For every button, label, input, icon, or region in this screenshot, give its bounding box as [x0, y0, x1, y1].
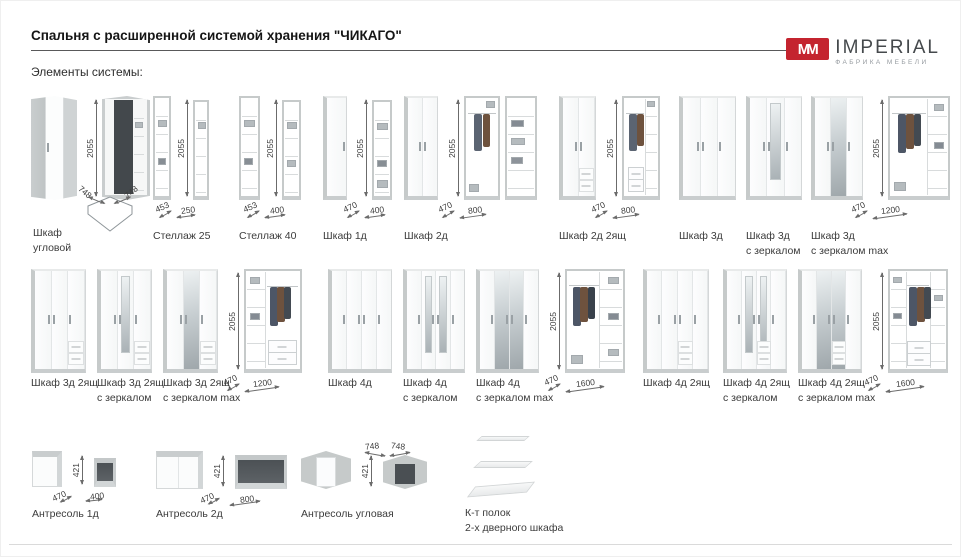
- page-bottom-divider: [9, 544, 952, 545]
- mirror-door: [184, 271, 201, 369]
- open-view: [383, 455, 427, 489]
- shelving-view-deep: [153, 96, 171, 200]
- open-view: [565, 269, 625, 373]
- width-dim: 800: [467, 204, 482, 216]
- height-dim: 421: [71, 453, 83, 487]
- product-label: Шкафугловой: [33, 226, 71, 255]
- closed-view: [31, 96, 77, 200]
- brand-logo: MM IMPERIAL ФАБРИКА МЕБЕЛИ: [786, 38, 940, 66]
- product-label: Шкаф 3дс зеркалом max: [811, 229, 888, 258]
- shelving-view-deep: [239, 96, 260, 200]
- depth-dim: 470: [51, 489, 68, 504]
- mirror-door: [436, 271, 451, 369]
- product-label: Шкаф 3д 2ящ: [31, 376, 98, 391]
- drawers: [832, 341, 847, 365]
- product-shkaf-4d-2yasch-zerkalo-max: 2055 470 1600: [798, 269, 948, 373]
- product-shkaf-3d-2yasch-zerkalo: Шкаф 3д 2ящс зеркалом: [97, 269, 152, 373]
- open-view: [94, 458, 116, 487]
- mirror-door: [495, 271, 510, 369]
- width-dim-right: 748: [391, 440, 406, 451]
- product-label: Стеллаж 25: [153, 229, 210, 244]
- drawers: [757, 341, 772, 365]
- shelving-view-front: [282, 100, 301, 200]
- section-subtitle: Элементы системы:: [31, 65, 143, 79]
- footprint: 748 748: [86, 196, 146, 236]
- product-antresol-2d: 421 470 800 Антресоль 2д: [156, 451, 287, 489]
- product-label: Шкаф 4дс зеркалом: [403, 376, 458, 405]
- product-antresol-1d: 421 470 400 Антресоль 1д: [32, 451, 116, 487]
- header-divider: [31, 50, 797, 51]
- drawers: [134, 341, 150, 365]
- width-dim: 400: [369, 204, 384, 216]
- product-shkaf-3d-2yasch-zerkalo-max: 2055 470 1200 Шкаф 3д 2ящс зеркалом m: [163, 269, 302, 373]
- closed-view: [163, 269, 218, 373]
- product-stellazh-40: 2055 453 400 Стеллаж 40: [239, 96, 301, 200]
- product-label: К-т полок2-х дверного шкафа: [465, 506, 563, 535]
- product-shkaf-4d-2yasch-zerkalo: Шкаф 4д 2ящс зеркалом: [723, 269, 787, 373]
- product-shkaf-3d-zerkalo: Шкаф 3дс зеркалом: [746, 96, 802, 200]
- closed-view: [476, 269, 539, 373]
- open-view: [888, 96, 950, 200]
- product-label: Шкаф 4д 2ящ: [643, 376, 710, 391]
- brand-tagline: ФАБРИКА МЕБЕЛИ: [835, 59, 940, 66]
- product-shkaf-4d-zerkalo: Шкаф 4дс зеркалом: [403, 269, 465, 373]
- product-shkaf-3d-2yasch: Шкаф 3д 2ящ: [31, 269, 86, 373]
- closed-view: [31, 269, 86, 373]
- height-dim: 2055: [548, 269, 560, 373]
- height-dim: 2055: [176, 96, 188, 200]
- width-dim: 400: [89, 490, 104, 502]
- drawers: [579, 168, 594, 192]
- open-view: [372, 100, 392, 200]
- height-dim: 2055: [871, 269, 883, 373]
- product-label: Шкаф 4дс зеркалом max: [476, 376, 553, 405]
- product-antresol-uglovaya: 421 748 748 Антресоль угловая: [301, 451, 427, 489]
- closed-view: [746, 96, 802, 200]
- height-dim: 421: [212, 453, 224, 489]
- product-label: Шкаф 1д: [323, 229, 367, 244]
- closed-view: [811, 96, 863, 200]
- product-shkaf-4d: Шкаф 4д: [328, 269, 392, 373]
- mirror-door: [817, 271, 832, 369]
- closed-view: [301, 451, 351, 489]
- product-shkaf-2d-2yasch: 2055 470 800 Шкаф 2д 2ящ: [559, 96, 660, 200]
- product-label: Шкаф 4д 2ящс зеркалом max: [798, 376, 875, 405]
- closed-view: [323, 96, 347, 200]
- product-shkaf-2d: 2055 470 800 Шкаф 2д: [404, 96, 537, 200]
- product-label: Шкаф 3д 2ящс зеркалом max: [163, 376, 240, 405]
- product-label: Стеллаж 40: [239, 229, 296, 244]
- open-view: [235, 455, 287, 489]
- product-shkaf-uglovoy: 2055 748 748 Шкафугловой: [31, 96, 150, 200]
- drawers: [68, 341, 84, 365]
- product-komplekt-polok: К-т полок2-х дверного шкафа: [465, 431, 535, 501]
- height-dim: 2055: [355, 96, 367, 200]
- product-label: Шкаф 3д 2ящс зеркалом: [97, 376, 164, 405]
- open-view-shelves: [505, 96, 537, 200]
- drawers: [200, 341, 216, 365]
- height-dim: 2055: [85, 96, 97, 200]
- open-view: [244, 269, 302, 373]
- height-dim: 421: [360, 453, 372, 489]
- height-dim: 2055: [447, 96, 459, 200]
- product-label: Антресоль угловая: [301, 507, 394, 522]
- product-label: Антресоль 1д: [32, 507, 99, 522]
- open-view-clothes: [464, 96, 500, 200]
- closed-view: [97, 269, 152, 373]
- product-label: Шкаф 2д 2ящ: [559, 229, 626, 244]
- product-label: Шкаф 4д 2ящс зеркалом: [723, 376, 790, 405]
- product-shkaf-4d-zerkalo-max: 2055 470 1600 Шкаф 4дс зеркалом max: [476, 269, 625, 373]
- closed-view: [156, 451, 203, 489]
- mirror-door: [422, 271, 437, 369]
- product-shkaf-4d-2yasch: Шкаф 4д 2ящ: [643, 269, 709, 373]
- shelving-view-front: [193, 100, 209, 200]
- product-shkaf-1d: 2055 470 400 Шкаф 1д: [323, 96, 392, 200]
- open-view: [622, 96, 660, 200]
- catalog-page: Спальня с расширенной системой хранения …: [0, 0, 961, 557]
- product-label: Антресоль 2д: [156, 507, 223, 522]
- mirror-door: [767, 98, 784, 196]
- top-dims: 748 748: [365, 443, 415, 453]
- product-stellazh-25: 2055 453 250 Стеллаж 25: [153, 96, 209, 200]
- closed-view: [404, 96, 438, 200]
- mirror-door: [831, 98, 847, 196]
- shelf-set-view: [465, 431, 535, 501]
- mirror-door: [510, 271, 525, 369]
- product-label: Шкаф 3д: [679, 229, 723, 244]
- closed-view: [643, 269, 709, 373]
- closed-view: [723, 269, 787, 373]
- brand-logo-icon: MM: [786, 38, 829, 60]
- depth-dim: 470: [199, 491, 216, 506]
- open-view: [102, 96, 150, 200]
- height-dim: 2055: [605, 96, 617, 200]
- height-dim: 2055: [227, 269, 239, 373]
- width-dim: 250: [180, 204, 195, 216]
- closed-view: [679, 96, 736, 200]
- closed-view: [403, 269, 465, 373]
- closed-view: [328, 269, 392, 373]
- product-label: Шкаф 3дс зеркалом: [746, 229, 801, 258]
- product-shkaf-3d-zerkalo-max: 2055 470 1200 Шкаф 3дс зеркалом max: [811, 96, 950, 200]
- closed-view: [798, 269, 862, 373]
- width-dim: 800: [620, 204, 635, 216]
- closed-view: [559, 96, 596, 200]
- height-dim: 2055: [871, 96, 883, 200]
- product-label: Шкаф 2д: [404, 229, 448, 244]
- closed-view: [32, 451, 62, 487]
- height-dim: 2055: [265, 96, 277, 200]
- brand-name: IMPERIAL: [835, 38, 940, 57]
- page-title: Спальня с расширенной системой хранения …: [31, 28, 402, 43]
- open-view: [888, 269, 948, 373]
- mirror-door: [118, 271, 135, 369]
- product-shkaf-3d: Шкаф 3д: [679, 96, 736, 200]
- product-label: Шкаф 4д: [328, 376, 372, 391]
- width-dim: 800: [239, 493, 254, 505]
- width-dim: 400: [269, 204, 284, 216]
- mirror-door: [742, 271, 757, 369]
- drawers: [678, 341, 693, 365]
